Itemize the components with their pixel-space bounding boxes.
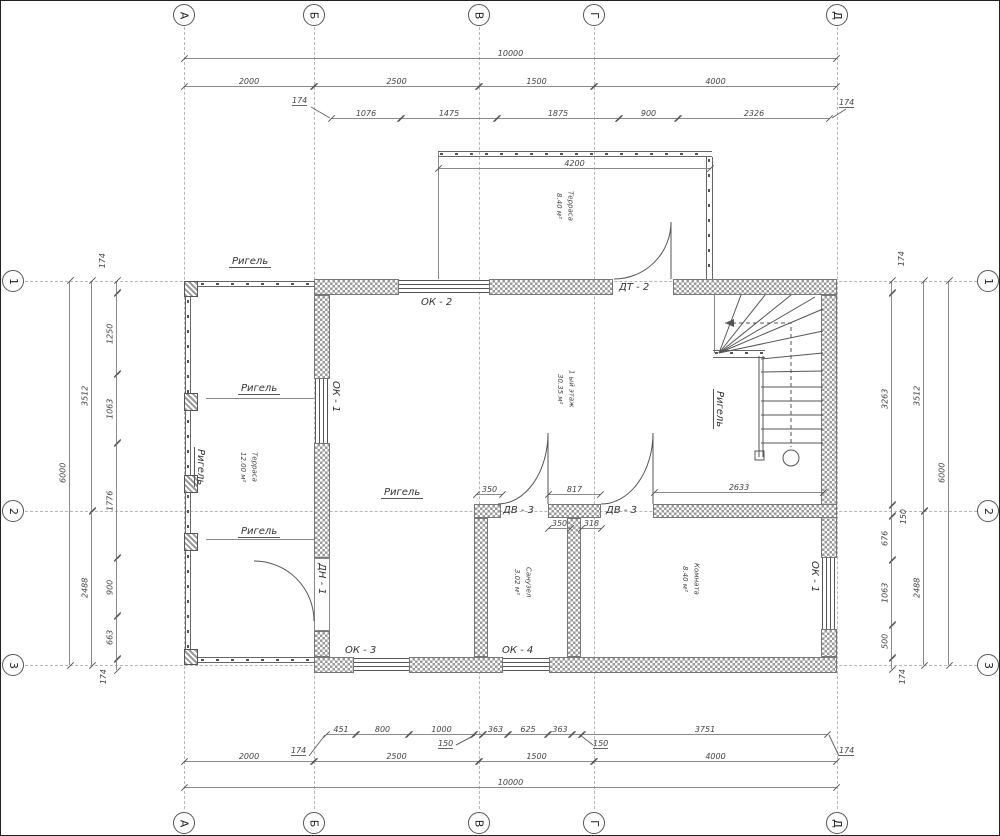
dim-top: 1475 xyxy=(401,118,497,119)
dim-left xyxy=(116,659,117,670)
floor-plan-sheet: 10000 2000 2500 1500 4000 1076 1475 1875… xyxy=(0,0,1000,836)
label-door-dt2: ДТ - 2 xyxy=(619,282,649,293)
dim-bottom: 3751 xyxy=(582,734,828,735)
dim-offset: 174 xyxy=(898,669,907,684)
dim-left: 1776 xyxy=(116,443,117,558)
dim-right: 1063 xyxy=(891,560,892,625)
dim-bottom: 4000 xyxy=(594,761,837,762)
dim-bottom: 2000 xyxy=(184,761,314,762)
axis-bubble-a-bottom: А xyxy=(173,812,195,834)
dim-right: 3512 xyxy=(923,281,924,511)
dim-bottom: 625 xyxy=(508,734,548,735)
dim-offset: 174 xyxy=(291,746,306,756)
dim-right xyxy=(891,658,892,669)
room-label-bathroom: Санузел3.02 м² xyxy=(511,551,533,613)
axis-bubble-v-bottom: В xyxy=(468,812,490,834)
dim-bottom: 2500 xyxy=(314,761,479,762)
dim-left-total: 6000 xyxy=(69,281,70,665)
dim-offset: 174 xyxy=(99,669,108,684)
leader-lines xyxy=(309,107,846,756)
dim-bottom: 1000 xyxy=(409,734,474,735)
dim-top: 2000 xyxy=(184,86,314,87)
dim-top: 1076 xyxy=(331,118,401,119)
dim-top: 2326 xyxy=(678,118,830,119)
door-dn1-arc xyxy=(254,561,314,621)
door-dv3a-arc xyxy=(498,433,548,504)
dim-bottom: 800 xyxy=(356,734,409,735)
dim-right: 500 xyxy=(891,625,892,658)
axis-bubble-g-top: Г xyxy=(583,4,605,26)
dim-door: 318 xyxy=(581,528,602,529)
stair-winder-treads xyxy=(719,295,823,372)
axis-bubble-1-right: 1 xyxy=(977,270,999,292)
label-window-ok2: ОК - 2 xyxy=(421,297,452,308)
axis-bubble-3-left: 3 xyxy=(2,654,24,676)
beam-label: Ригель xyxy=(238,526,280,538)
room-label-terrace-left: Терраса12.00 м² xyxy=(237,433,259,501)
room-label-terrace-top: Терраса8.40 м² xyxy=(553,173,575,239)
dim-right: 3263 xyxy=(891,293,892,505)
dim-offset: 174 xyxy=(98,253,107,268)
dim-offset: 150 xyxy=(593,739,608,749)
axis-bubble-b-top: Б xyxy=(303,4,325,26)
dim-door: 350 xyxy=(476,494,503,495)
dim-left: 2488 xyxy=(91,511,92,665)
dim-top: 4000 xyxy=(594,86,837,87)
beam-label: Ригель xyxy=(381,487,423,499)
beam-label: Ригель xyxy=(194,447,206,487)
dim-top: 1875 xyxy=(497,118,619,119)
dim-offset: 150 xyxy=(438,739,453,749)
axis-bubble-b-bottom: Б xyxy=(303,812,325,834)
beam-label: Ригель xyxy=(229,256,271,268)
dim-offset: 174 xyxy=(839,746,854,756)
dim-door: 350 xyxy=(548,528,571,529)
stair-walk-line xyxy=(725,323,791,447)
dim-stair-width: 2633 xyxy=(654,492,824,493)
stair-straight-treads xyxy=(761,387,823,443)
label-door-dv3a: ДВ - 3 xyxy=(503,505,534,516)
dim-right: 2488 xyxy=(923,511,924,665)
axis-bubble-d-top: Д xyxy=(826,4,848,26)
dim-door: 817 xyxy=(548,494,601,495)
label-window-ok3: ОК - 3 xyxy=(345,645,376,656)
door-dv3b-arc xyxy=(601,433,653,504)
label-door-dv3b: ДВ - 3 xyxy=(606,505,637,516)
room-label-floor1: 1 ый этаж30.35 м² xyxy=(554,351,576,427)
dim-left: 1250 xyxy=(116,293,117,374)
room-label-komnata: Комната8.40 м² xyxy=(679,547,701,611)
dim-left: 3512 xyxy=(91,281,92,511)
dim-top: 2500 xyxy=(314,86,479,87)
dim-offset: 150 xyxy=(899,509,908,524)
axis-bubble-2-left: 2 xyxy=(2,500,24,522)
dim-left: 900 xyxy=(116,558,117,616)
dim-right: 676 xyxy=(891,516,892,560)
axis-bubble-3-right: 3 xyxy=(977,654,999,676)
label-door-dn1: ДН - 1 xyxy=(316,563,327,595)
dim-offset: 174 xyxy=(839,98,854,108)
dim-terrace-width: 4200 xyxy=(438,168,711,169)
doors-stairs-layer xyxy=(1,1,1000,836)
axis-bubble-v-top: В xyxy=(468,4,490,26)
dim-bottom: 1500 xyxy=(479,761,594,762)
dim-top-total: 10000 xyxy=(184,58,837,59)
axis-bubble-d-bottom: Д xyxy=(826,812,848,834)
stair-pole xyxy=(783,450,799,466)
dim-left: 663 xyxy=(116,616,117,659)
beam-label: Ригель xyxy=(238,383,280,395)
dim-left: 1063 xyxy=(116,374,117,443)
door-dt2-arc xyxy=(614,222,671,279)
dim-bottom-total: 10000 xyxy=(184,787,837,788)
axis-bubble-2-right: 2 xyxy=(977,500,999,522)
dim-right-total: 6000 xyxy=(948,281,949,665)
label-window-ok1-left: ОК - 1 xyxy=(330,381,341,412)
label-window-ok4: ОК - 4 xyxy=(502,645,533,656)
dim-bottom: 363 xyxy=(548,734,572,735)
label-window-ok1-right: ОК - 1 xyxy=(809,561,820,592)
dim-offset: 174 xyxy=(292,96,307,106)
dim-offset: 174 xyxy=(897,251,906,266)
axis-bubble-1-left: 1 xyxy=(2,270,24,292)
dim-top: 900 xyxy=(619,118,678,119)
dim-top: 1500 xyxy=(479,86,594,87)
dim-bottom: 451 xyxy=(326,734,356,735)
beam-label: Ригель xyxy=(713,389,725,429)
dim-bottom: 363 xyxy=(483,734,508,735)
axis-bubble-a-top: А xyxy=(173,4,195,26)
axis-bubble-g-bottom: Г xyxy=(583,812,605,834)
